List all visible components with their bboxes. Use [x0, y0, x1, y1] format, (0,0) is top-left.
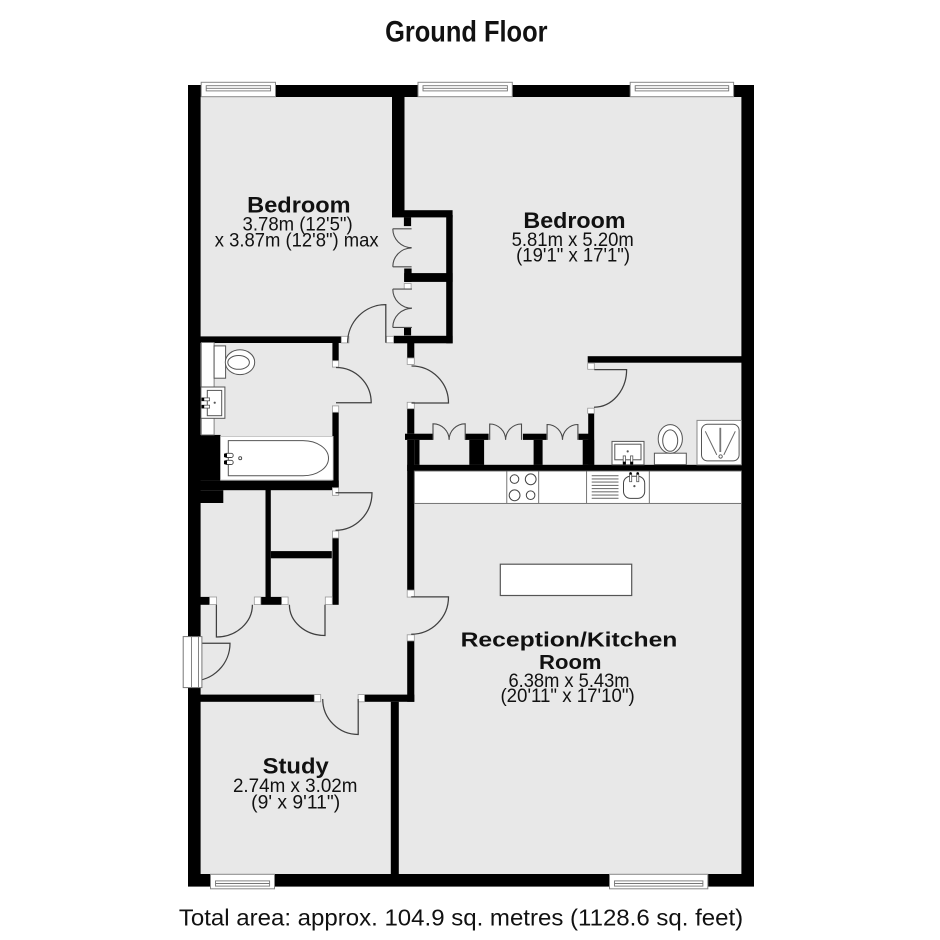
svg-text:x 3.87m (12'8") max: x 3.87m (12'8") max	[215, 230, 379, 251]
svg-text:Ground Floor: Ground Floor	[385, 15, 548, 48]
svg-text:(9' x 9'11"): (9' x 9'11")	[251, 792, 340, 813]
svg-text:(19'1" x 17'1"): (19'1" x 17'1")	[516, 246, 630, 267]
svg-text:(20'11" x 17'10"): (20'11" x 17'10")	[500, 686, 634, 707]
svg-text:Study: Study	[263, 754, 330, 779]
svg-text:Reception/Kitchen: Reception/Kitchen	[461, 630, 678, 652]
svg-text:Total area: approx. 104.9 sq.: Total area: approx. 104.9 sq. metres (11…	[179, 904, 743, 930]
